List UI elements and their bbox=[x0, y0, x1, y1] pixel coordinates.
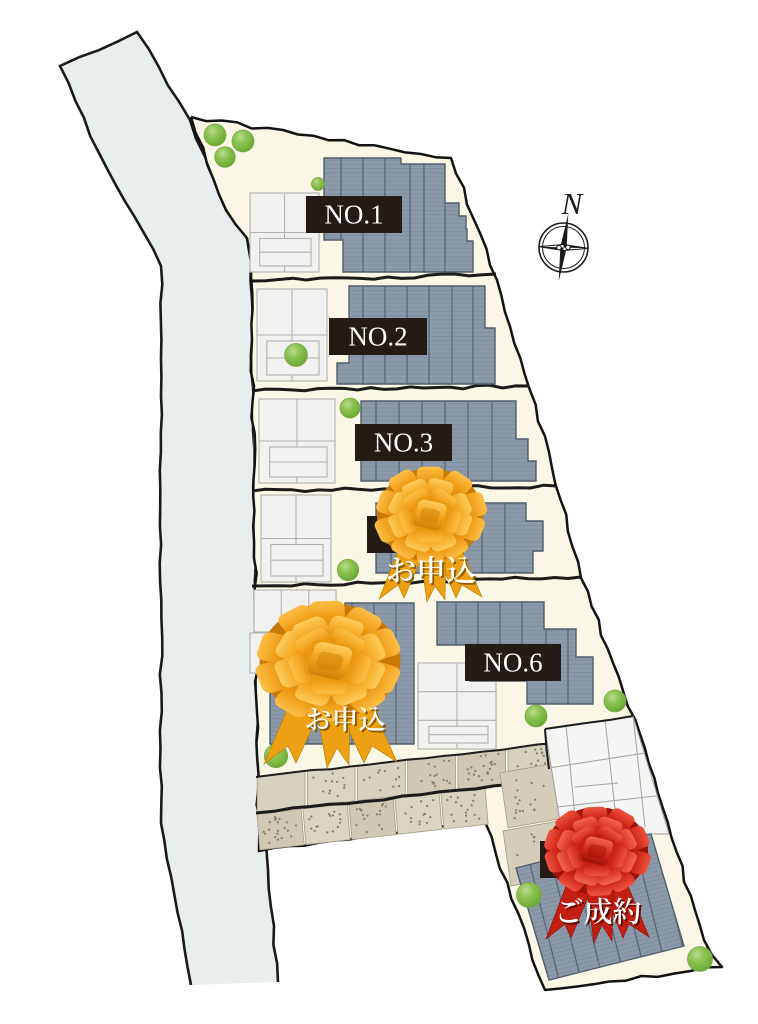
svg-text:NO.2: NO.2 bbox=[348, 322, 407, 352]
svg-text:NO.3: NO.3 bbox=[374, 428, 433, 458]
svg-text:NO.6: NO.6 bbox=[483, 648, 542, 678]
svg-text:NO.1: NO.1 bbox=[324, 200, 383, 230]
svg-text:N: N bbox=[561, 186, 585, 221]
